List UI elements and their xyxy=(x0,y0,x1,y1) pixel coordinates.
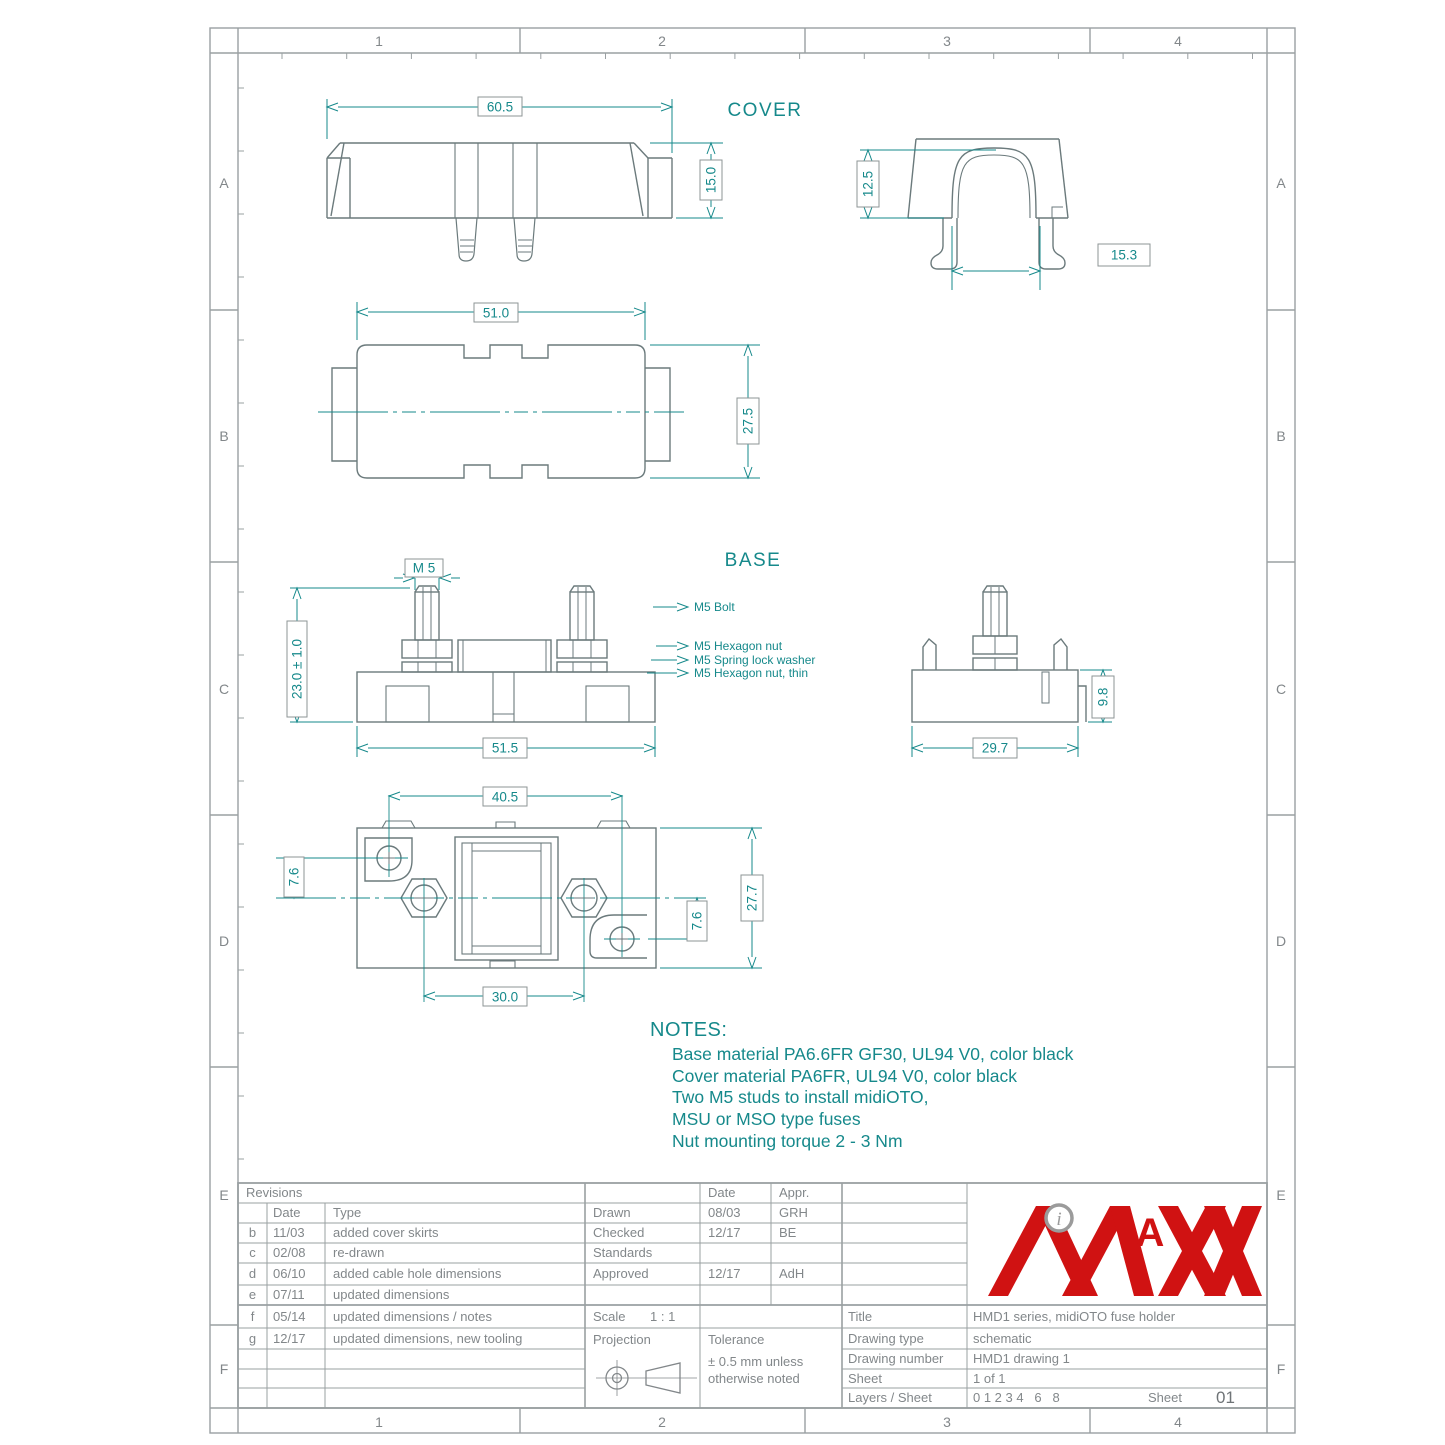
col-label-top-1: 1 xyxy=(375,33,383,49)
scale-label: Scale xyxy=(593,1309,626,1324)
note-line: Nut mounting torque 2 - 3 Nm xyxy=(672,1131,903,1152)
note-line: MSU or MSO type fuses xyxy=(672,1109,861,1130)
approvals-date-header: Date xyxy=(708,1185,735,1200)
revision-row-type: re-drawn xyxy=(333,1245,384,1260)
row-label-left-A: A xyxy=(219,175,229,191)
sheet-value: 1 of 1 xyxy=(973,1371,1006,1386)
cover-top-view xyxy=(332,345,670,478)
cover-side-view xyxy=(908,139,1068,269)
row-label-right-D: D xyxy=(1276,933,1286,949)
dim-base-top-width: 27.7 xyxy=(745,885,760,911)
layers-label: Layers / Sheet xyxy=(848,1390,932,1405)
col-label-top-3: 3 xyxy=(943,33,951,49)
logo-letter-a: A xyxy=(1136,1211,1165,1255)
revision-row-type: added cover skirts xyxy=(333,1225,439,1240)
dim-base-side-width: 29.7 xyxy=(982,741,1008,756)
scale-value: 1 : 1 xyxy=(650,1309,675,1324)
dim-base-top-hole-offset-right: 7.6 xyxy=(690,912,705,931)
note-line: Two M5 studs to install midiOTO, xyxy=(672,1087,928,1108)
col-label-bottom-1: 1 xyxy=(375,1414,383,1430)
revision-row-date: 05/14 xyxy=(273,1309,306,1324)
revision-row-id: d xyxy=(240,1266,265,1281)
approval-date: 12/17 xyxy=(708,1266,741,1281)
dim-cover-side-depth: 12.5 xyxy=(861,171,876,197)
col-label-top-2: 2 xyxy=(658,33,666,49)
engineering-drawing-page: 1 2 3 4 1 2 3 4 A B C D E F A B C D E F xyxy=(0,0,1445,1445)
dim-base-height: 23.0 ± 1.0 xyxy=(290,639,305,699)
col-label-bottom-4: 4 xyxy=(1174,1414,1182,1430)
row-label-left-E: E xyxy=(219,1187,228,1203)
dim-cover-top-width: 27.5 xyxy=(741,408,756,434)
callout-m5-hex-nut: M5 Hexagon nut xyxy=(694,639,783,653)
revision-row-date: 02/08 xyxy=(273,1245,306,1260)
dim-base-stud-thread: M 5 xyxy=(413,561,436,576)
revision-row-id: f xyxy=(240,1309,265,1324)
revision-row-date: 06/10 xyxy=(273,1266,306,1281)
projection-symbol-icon xyxy=(596,1360,697,1396)
dimension-boxes xyxy=(284,97,1150,1006)
callout-m5-spring-washer: M5 Spring lock washer xyxy=(694,653,815,667)
row-label-right-E: E xyxy=(1276,1187,1285,1203)
row-label-right-B: B xyxy=(1276,428,1285,444)
dim-base-top-hole-offset-left: 7.6 xyxy=(287,868,302,887)
row-label-left-F: F xyxy=(220,1361,229,1377)
tolerance-label: Tolerance xyxy=(708,1332,764,1347)
row-label-left-B: B xyxy=(219,428,228,444)
dim-cover-side-leg-span: 15.3 xyxy=(1111,248,1137,263)
dim-base-top-stud-span: 30.0 xyxy=(492,990,518,1005)
revision-row-date: 11/03 xyxy=(273,1225,305,1240)
drawing-number-label: Drawing number xyxy=(848,1351,943,1366)
sheet-corner-label: Sheet xyxy=(1148,1390,1182,1405)
approvals-appr-header: Appr. xyxy=(779,1185,809,1200)
drawing-type-label: Drawing type xyxy=(848,1331,924,1346)
cover-front-view xyxy=(327,143,672,261)
dim-base-top-hole-span: 40.5 xyxy=(492,790,518,805)
note-line: Cover material PA6FR, UL94 V0, color bla… xyxy=(672,1066,1017,1087)
title-label: Title xyxy=(848,1309,872,1324)
base-top-view xyxy=(357,821,656,968)
approval-label: Checked xyxy=(593,1225,644,1240)
base-view-title: BASE xyxy=(725,550,782,571)
frame-ruler-ticks xyxy=(238,53,1253,1159)
revisions-date-header: Date xyxy=(273,1205,300,1220)
revision-row-type: updated dimensions, new tooling xyxy=(333,1331,522,1346)
approval-date: 12/17 xyxy=(708,1225,741,1240)
col-label-bottom-2: 2 xyxy=(658,1414,666,1430)
layers-value: 0 1 2 3 4 6 8 xyxy=(973,1390,1060,1405)
revision-row-date: 12/17 xyxy=(273,1331,306,1346)
callout-m5-bolt: M5 Bolt xyxy=(694,600,735,614)
callout-m5-hex-nut-thin: M5 Hexagon nut, thin xyxy=(694,666,808,680)
dim-cover-top-length: 51.0 xyxy=(483,306,509,321)
title-value: HMD1 series, midiOTO fuse holder xyxy=(973,1309,1175,1324)
note-line: Base material PA6.6FR GF30, UL94 V0, col… xyxy=(672,1044,1073,1065)
dimension-texts: 60.5 15.0 12.5 15.3 51.0 27.5 M 5 23.0 ±… xyxy=(287,100,1138,1005)
row-label-right-C: C xyxy=(1276,681,1286,697)
approval-appr: BE xyxy=(779,1225,796,1240)
dimension-lines xyxy=(290,99,1112,996)
approval-date: 08/03 xyxy=(708,1205,741,1220)
imaxx-logo: A i xyxy=(988,1205,1262,1296)
approval-label: Drawn xyxy=(593,1205,631,1220)
notes-title: NOTES: xyxy=(650,1019,727,1042)
approval-label: Standards xyxy=(593,1245,652,1260)
dim-cover-front-height: 15.0 xyxy=(704,167,719,193)
base-side-view xyxy=(912,586,1086,722)
revisions-type-header: Type xyxy=(333,1205,361,1220)
drawing-type-value: schematic xyxy=(973,1331,1032,1346)
revision-row-type: updated dimensions / notes xyxy=(333,1309,492,1324)
approval-appr: GRH xyxy=(779,1205,808,1220)
revisions-title: Revisions xyxy=(246,1185,302,1200)
row-label-left-D: D xyxy=(219,933,229,949)
logo-letter-i: i xyxy=(1056,1209,1061,1230)
projection-label: Projection xyxy=(593,1332,651,1347)
row-label-left-C: C xyxy=(219,681,229,697)
revision-row-id: c xyxy=(240,1245,265,1260)
col-label-top-4: 4 xyxy=(1174,33,1182,49)
revision-row-id: e xyxy=(240,1287,265,1302)
tolerance-line-1: ± 0.5 mm unless xyxy=(708,1354,803,1369)
revision-row-id: g xyxy=(240,1331,265,1346)
sheet-label: Sheet xyxy=(848,1371,882,1386)
dim-cover-front-width: 60.5 xyxy=(487,100,513,115)
revision-row-date: 07/11 xyxy=(273,1287,305,1302)
row-label-right-F: F xyxy=(1277,1361,1286,1377)
row-label-right-A: A xyxy=(1276,175,1286,191)
sheet-corner-value: 01 xyxy=(1216,1388,1235,1408)
cover-view-title: COVER xyxy=(727,100,802,121)
approval-appr: AdH xyxy=(779,1266,804,1281)
base-top-centerlines xyxy=(276,795,676,1002)
drawing-number-value: HMD1 drawing 1 xyxy=(973,1351,1070,1366)
revision-row-id: b xyxy=(240,1225,265,1240)
approval-label: Approved xyxy=(593,1266,649,1281)
tolerance-line-2: otherwise noted xyxy=(708,1371,800,1386)
revision-row-type: added cable hole dimensions xyxy=(333,1266,501,1281)
dim-base-length: 51.5 xyxy=(492,741,518,756)
dim-base-side-height: 9.8 xyxy=(1096,688,1111,707)
revision-row-type: updated dimensions xyxy=(333,1287,449,1302)
base-front-view xyxy=(357,586,655,722)
col-label-bottom-3: 3 xyxy=(943,1414,951,1430)
